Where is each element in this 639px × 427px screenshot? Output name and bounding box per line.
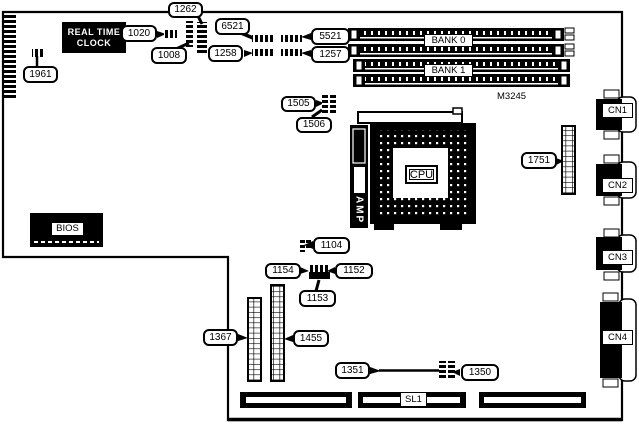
callout-1367: 1367 xyxy=(203,329,238,346)
callout-1961: 1961 xyxy=(23,66,58,83)
board-graphics xyxy=(0,0,639,427)
callout-1350: 1350 xyxy=(461,364,499,381)
header-1262 xyxy=(197,16,207,53)
model-id-text: M3245 xyxy=(497,92,526,102)
callout-1351: 1351 xyxy=(335,362,370,379)
motherboard-diagram: REAL TIME CLOCK AMP M3245 1961 1020 1008… xyxy=(0,0,639,427)
cn2-label: CN2 xyxy=(602,178,633,193)
callout-1020: 1020 xyxy=(121,25,157,42)
callout-6521: 6521 xyxy=(215,18,250,35)
callout-1751: 1751 xyxy=(521,152,557,169)
expansion-slot-1 xyxy=(240,392,352,408)
amp-marking: AMP xyxy=(350,192,368,228)
rtc-label-line1: REAL TIME xyxy=(68,27,121,38)
callout-1008: 1008 xyxy=(151,47,187,64)
callout-1258: 1258 xyxy=(208,45,243,62)
callout-1154: 1154 xyxy=(265,263,301,279)
callout-1257: 1257 xyxy=(311,46,350,63)
bios-label: BIOS xyxy=(51,222,84,236)
bank1-label: BANK 1 xyxy=(424,64,473,77)
jumper-1020 xyxy=(157,30,177,38)
header-1008 xyxy=(176,21,193,49)
callout-1153: 1153 xyxy=(299,290,336,307)
callout-1262: 1262 xyxy=(168,2,203,18)
power-edge-connector xyxy=(4,13,16,99)
header-1367 xyxy=(238,298,261,381)
jumper-1351-1350 xyxy=(370,361,460,380)
header-1455 xyxy=(271,285,293,381)
header-1258 xyxy=(244,49,274,57)
cn4-label: CN4 xyxy=(602,330,633,345)
callout-1505: 1505 xyxy=(281,96,316,112)
header-5521 xyxy=(281,33,311,42)
header-1257 xyxy=(281,49,311,57)
rtc-label-line2: CLOCK xyxy=(77,38,112,49)
cn3-label: CN3 xyxy=(602,250,633,265)
cpu-label: CPU xyxy=(405,165,438,184)
expansion-slot-3 xyxy=(479,392,586,408)
real-time-clock-chip: REAL TIME CLOCK xyxy=(62,22,126,53)
callout-1455: 1455 xyxy=(293,330,329,347)
callout-1506: 1506 xyxy=(296,117,332,133)
jumper-1154-1152-1153 xyxy=(300,265,335,291)
cn1-label: CN1 xyxy=(602,103,633,118)
callout-5521: 5521 xyxy=(311,28,350,45)
callout-1104: 1104 xyxy=(313,237,350,254)
sl1-label: SL1 xyxy=(400,392,427,407)
bank0-label: BANK 0 xyxy=(424,34,473,47)
jumper-1961 xyxy=(32,49,43,66)
callout-1152: 1152 xyxy=(335,263,373,279)
header-1751 xyxy=(556,126,575,194)
jumper-1104 xyxy=(300,238,313,252)
